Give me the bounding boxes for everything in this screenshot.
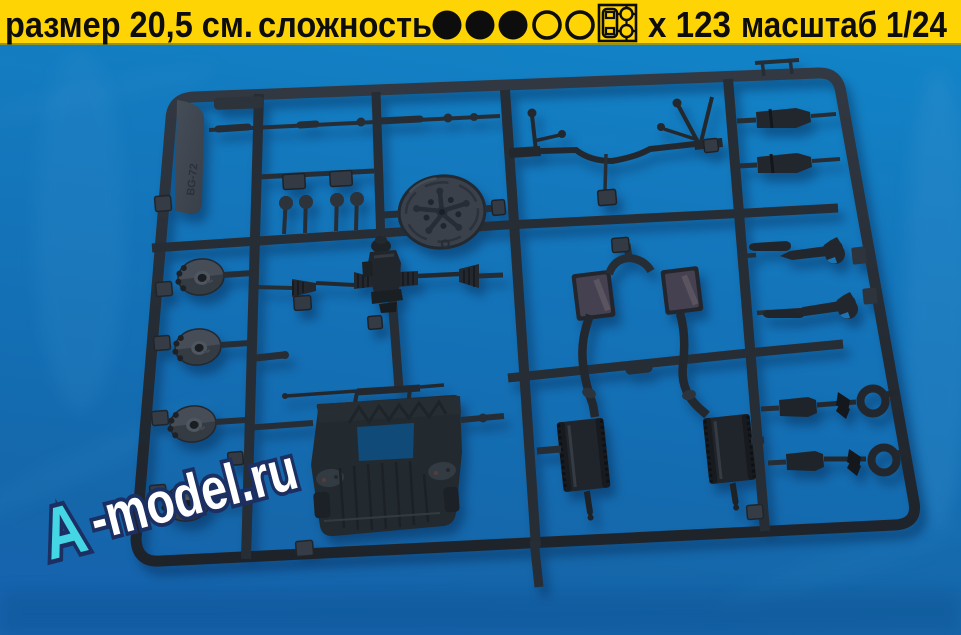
svg-text:-model.ru: -model.ru — [83, 437, 304, 553]
